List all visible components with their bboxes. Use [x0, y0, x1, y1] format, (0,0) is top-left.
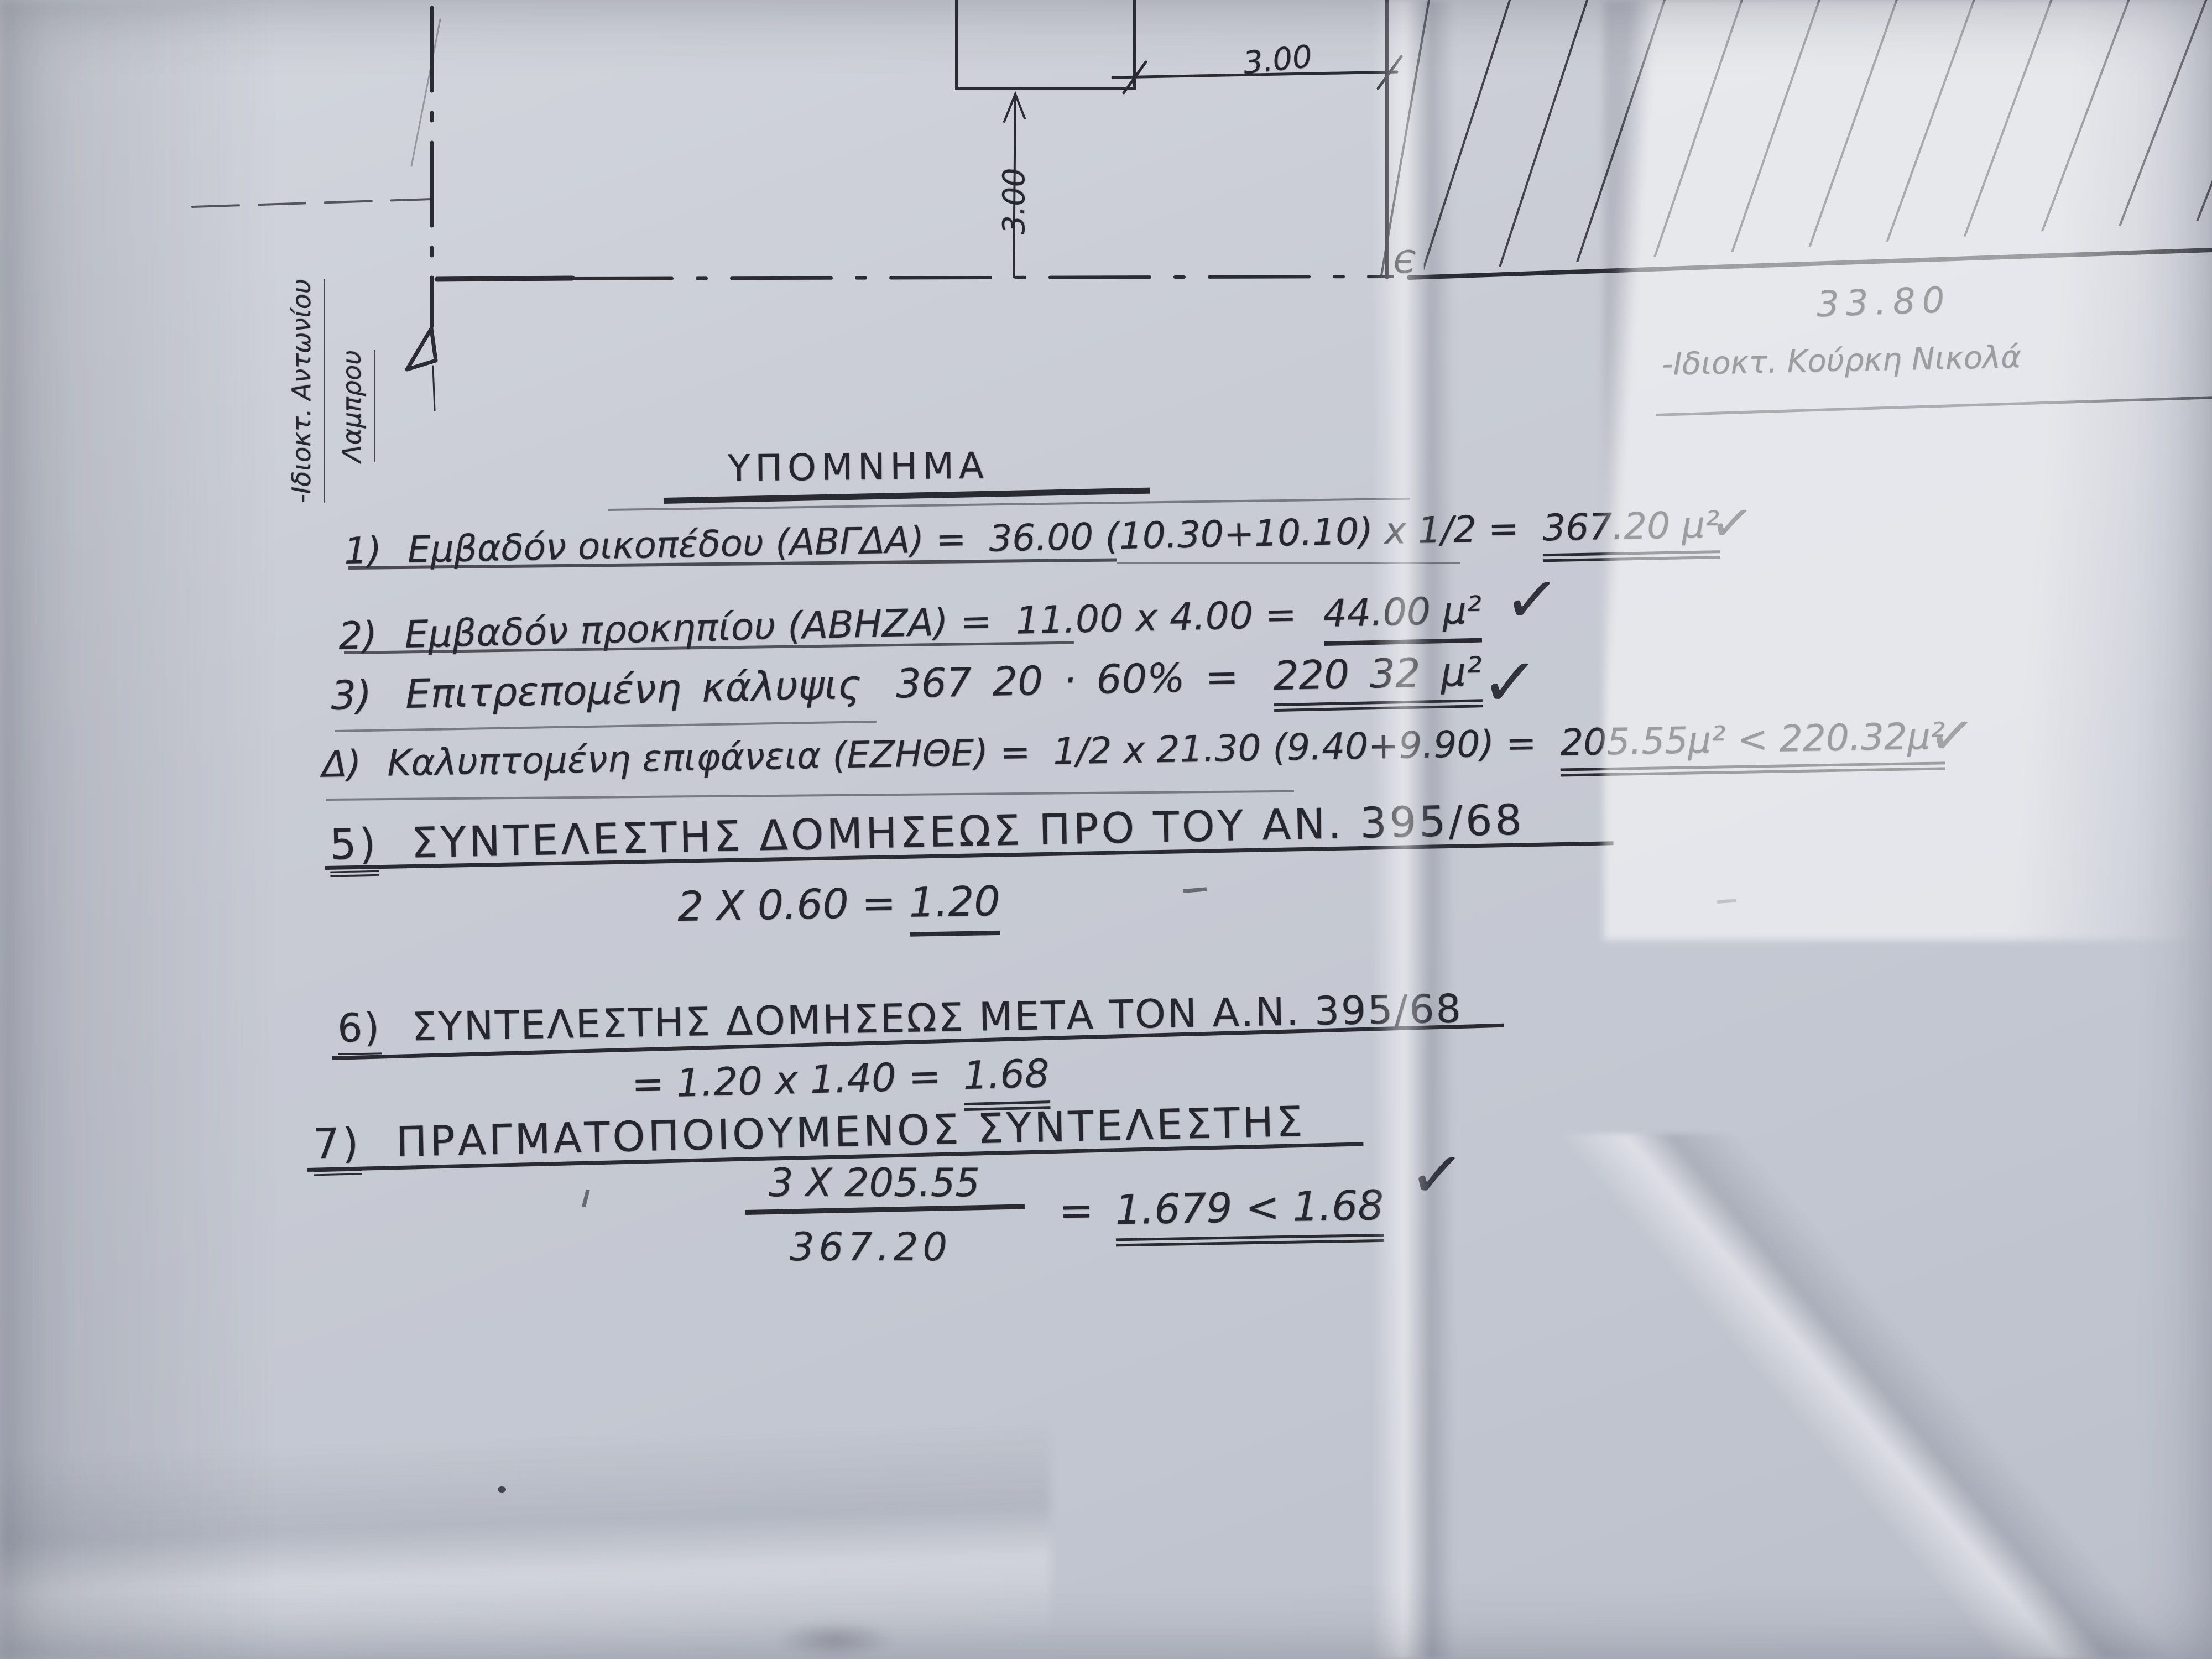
fraction-denominator: 367.20 — [790, 1224, 952, 1270]
point-label-epsilon: Є — [1394, 244, 1415, 280]
item-7-result: 1.679 < 1.68 — [1115, 1182, 1385, 1246]
fraction-numerator: 3 X 205.55 — [769, 1160, 980, 1206]
owner-label-left-line2: Λαμπρου — [330, 350, 375, 462]
owner-label-right: -Ιδιοκτ. Κούρκη Νικολά — [1661, 339, 2021, 383]
item-6-number: 6) — [337, 1004, 382, 1058]
item-3-result: 220 32 μ² — [1273, 648, 1483, 712]
item-3-body: Επιτρεπομένη κάλυψις — [405, 661, 862, 717]
item-2-calc: 11.00 x 4.00 = — [1015, 593, 1297, 643]
item-5-calc: 2 X 0.60 = — [677, 879, 896, 931]
owner-label-left: -Ιδιοκτ. Αντωνίου Λαμπρου — [279, 171, 380, 503]
item-4-checkmark: ✓ — [1925, 701, 1979, 770]
building-step-outline — [957, 0, 1135, 88]
item-1-result: 367.20 μ² — [1542, 503, 1720, 562]
item-7-result-equals: = — [1058, 1187, 1094, 1235]
item-7-checkmark: ✓ — [1406, 1135, 1468, 1216]
item-6-result: 1.68 — [963, 1051, 1051, 1111]
item-4-number: Δ) — [322, 742, 362, 785]
item-6-calc: = 1.20 x 1.40 = — [631, 1053, 941, 1107]
frontage-dimension-label: 33.80 — [1816, 280, 1952, 325]
item-5-result: 1.20 — [909, 878, 1001, 937]
item-1-underline-2 — [1117, 562, 1460, 564]
neighbour-plot-hatch — [1421, 0, 2212, 275]
owner-label-left-line1: -Ιδιοκτ. Αντωνίου — [279, 279, 325, 503]
photographed-plan-document: 3.00 3.00 33.80 Є -Ιδιοκτ. Κούρκη Νικολά… — [0, 0, 2212, 1659]
dimension-label-side: 3.00 — [997, 168, 1031, 234]
memo-title: ΥΠΟΜΝΗΜΑ — [728, 445, 989, 490]
item-4-calc: 1/2 x 21.30 (9.40+9.90) = — [1053, 722, 1537, 773]
item-7-result-line: = 1.679 < 1.68 — [1058, 1182, 1384, 1235]
item-3-number: 3) — [330, 671, 372, 719]
item-2-result: 44.00 μ² — [1322, 589, 1482, 646]
item-2-checkmark: ✓ — [1501, 560, 1563, 641]
dimension-label-top: 3.00 — [1241, 39, 1314, 82]
survey-marker-triangle — [407, 328, 436, 369]
item-1-checkmark: ✓ — [1707, 491, 1757, 557]
item-5-calculation: 2 X 0.60 = 1.20 — [677, 878, 1000, 931]
item-3-calc: 367 20 · 60% = — [895, 653, 1239, 707]
item-4-result: 205.55μ² < 220.32μ² — [1560, 714, 1946, 776]
item-3-checkmark: ✓ — [1479, 641, 1541, 724]
